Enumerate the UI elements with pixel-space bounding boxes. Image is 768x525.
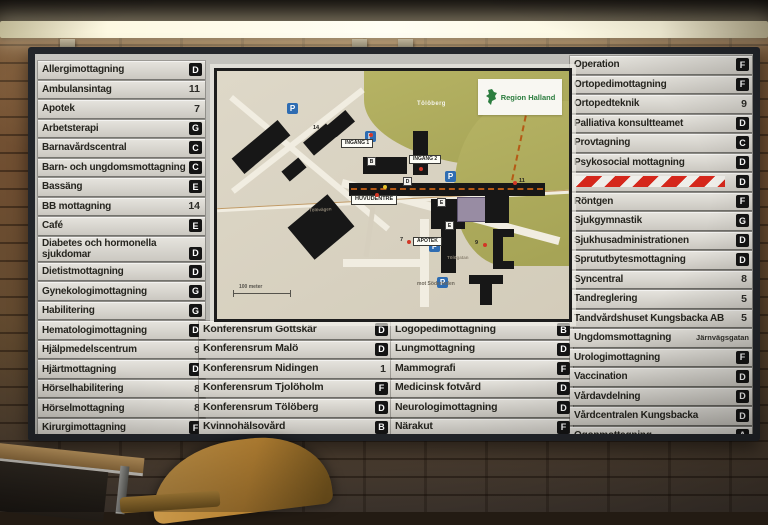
- location-badge: D: [736, 156, 749, 169]
- service-name: Mammografi: [395, 363, 554, 375]
- directory-row: Syncentral8: [570, 271, 752, 289]
- directory-row: CaféE: [38, 217, 205, 235]
- map-building: [480, 275, 492, 305]
- service-name: Syncentral: [574, 274, 738, 285]
- directory-row: BarnavårdscentralC: [38, 139, 205, 157]
- directory-row: SjukgymnastikG: [570, 212, 752, 230]
- directory-column-conference: Konferensrum GottskärDKonferensrum MalöD…: [198, 320, 392, 434]
- building-letter: D: [403, 177, 412, 186]
- directory-column-left: AllergimottagningDAmbulansintag11Apotek7…: [37, 60, 206, 434]
- service-name: Psykosocial mottagning: [574, 157, 733, 168]
- directory-row: OperationF: [570, 56, 752, 74]
- service-name: Barnavårdscentral: [42, 142, 186, 153]
- location-badge: C: [189, 141, 202, 154]
- service-name: Närakut: [395, 421, 554, 433]
- service-name: Vårdcentralen Kungsbacka: [574, 410, 733, 421]
- location-badge: 8: [741, 273, 747, 285]
- map-building-highlighted: [457, 197, 486, 222]
- directory-row: Konferensrum TölöbergD: [199, 399, 391, 417]
- directory-row: NeurologimottagningD: [391, 399, 573, 417]
- service-name: Konferensrum Gottskär: [203, 324, 372, 336]
- location-badge: D: [189, 63, 202, 76]
- service-name: Hjälpmedelscentrum: [42, 344, 191, 355]
- region-halland-logo: Region Halland: [478, 79, 562, 115]
- directory-row: SprututbytesmottagningD: [570, 251, 752, 269]
- directory-row: Ambulansintag11: [38, 81, 205, 99]
- directory-row: KvinnohälsovårdB: [199, 419, 391, 435]
- street-label: Tölögatan: [447, 255, 469, 260]
- map-building: [441, 229, 456, 273]
- service-name: Provtagning: [574, 137, 733, 148]
- service-name: Habilitering: [42, 305, 186, 316]
- directory-row: VårdavdelningD: [570, 388, 752, 406]
- service-name: Palliativa konsultteamet: [574, 118, 733, 129]
- location-badge: D: [736, 253, 749, 266]
- location-badge: D: [189, 247, 202, 260]
- location-badge: D: [375, 323, 388, 336]
- service-name: Gynekologimottagning: [42, 286, 186, 297]
- directory-row: Konferensrum Nidingen1: [199, 360, 391, 378]
- directory-row: D: [570, 173, 752, 191]
- directory-row: OrtopedimottagningF: [570, 76, 752, 94]
- logo-text: Region Halland: [501, 93, 556, 102]
- location-badge: E: [189, 180, 202, 193]
- bus-stop-marker: [383, 185, 387, 189]
- directory-row: ArbetsterapiG: [38, 120, 205, 138]
- service-name: Urologimottagning: [574, 352, 733, 363]
- halland-region-icon: [485, 89, 498, 105]
- directory-row: Psykosocial mottagningD: [570, 154, 752, 172]
- directory-row: Ortopedteknik9: [570, 95, 752, 113]
- directory-row: Konferensrum MalöD: [199, 341, 391, 359]
- directory-column-center: LogopedimottagningBLungmottagningDMammog…: [390, 320, 574, 434]
- location-badge: Järnvägsgatan: [696, 333, 749, 342]
- service-name: Ambulansintag: [42, 84, 186, 95]
- location-badge: D: [736, 234, 749, 247]
- directory-row: SjukhusadministrationenD: [570, 232, 752, 250]
- directory-row: UngdomsmottagningJärnvägsgatan: [570, 329, 752, 347]
- directory-row: Barn- och ungdomsmottagningC: [38, 159, 205, 177]
- directory-row: Vårdcentralen KungsbackaD: [570, 407, 752, 425]
- service-name: Lungmottagning: [395, 343, 554, 355]
- location-badge: 1: [380, 363, 386, 375]
- service-name: Kirurgimottagning: [42, 422, 186, 433]
- service-name: Allergimottagning: [42, 64, 186, 75]
- park-label: Tölöberg: [417, 101, 446, 107]
- location-badge: F: [736, 58, 749, 71]
- building-letter: B: [367, 157, 376, 166]
- location-badge: D: [736, 370, 749, 383]
- directory-row: Apotek7: [38, 100, 205, 118]
- directory-row: AllergimottagningD: [38, 61, 205, 79]
- directory-row: HjärtmottagningD: [38, 360, 205, 378]
- marker-number-9: 9: [475, 240, 478, 246]
- location-badge: D: [375, 401, 388, 414]
- service-name: Ortopedteknik: [574, 98, 738, 109]
- location-badge: D: [736, 390, 749, 403]
- service-name: Röntgen: [574, 196, 733, 207]
- directory-row: Medicinsk fotvårdD: [391, 380, 573, 398]
- location-badge: D: [375, 343, 388, 356]
- service-name: Hörselhabilitering: [42, 383, 191, 394]
- service-name: Sjukhusadministrationen: [574, 235, 733, 246]
- service-name: Medicinsk fotvård: [395, 382, 554, 394]
- pharmacy-marker: [407, 240, 411, 244]
- location-badge: F: [736, 195, 749, 208]
- map-building: [485, 189, 509, 223]
- location-badge: C: [736, 136, 749, 149]
- service-name: Ortopedimottagning: [574, 79, 733, 90]
- directory-row: Konferensrum GottskärD: [199, 321, 391, 339]
- directory-row: GynekologimottagningG: [38, 282, 205, 300]
- directory-row: Hörselhabilitering8: [38, 380, 205, 398]
- service-name: Diabetes och hormonella sjukdomar: [42, 238, 186, 260]
- directory-row: RöntgenF: [570, 193, 752, 211]
- marker-dot: [513, 181, 517, 185]
- marker-number-11: 11: [519, 178, 525, 184]
- location-badge: B: [375, 421, 388, 434]
- directory-row: HabiliteringG: [38, 302, 205, 320]
- entrance-marker: [369, 133, 373, 137]
- directory-row: KirurgimottagningF: [38, 419, 205, 434]
- location-badge: F: [375, 382, 388, 395]
- directory-row: LogopedimottagningB: [391, 321, 573, 339]
- service-name: Konferensrum Malö: [203, 343, 372, 355]
- directory-row: Tandvårdshuset Kungsbacka AB5: [570, 310, 752, 328]
- route-dashed-line: [351, 188, 543, 190]
- entrance-marker: [375, 193, 379, 197]
- fluorescent-light: [0, 21, 768, 38]
- location-badge: G: [189, 304, 202, 317]
- directory-column-right: OperationFOrtopedimottagningFOrtopedtekn…: [569, 55, 753, 434]
- building-letter: E: [437, 198, 446, 207]
- marker-number-14: 14: [313, 125, 319, 131]
- location-badge: E: [189, 219, 202, 232]
- location-badge: 14: [188, 200, 200, 212]
- directory-row: Konferensrum TjolöholmF: [199, 380, 391, 398]
- directory-row: BassängE: [38, 178, 205, 196]
- site-map: Tölöberg: [217, 71, 569, 319]
- service-name: Tandreglering: [574, 293, 738, 304]
- service-name: Konferensrum Nidingen: [203, 363, 377, 375]
- service-name: Hörselmottagning: [42, 403, 191, 414]
- map-scale-bar: [233, 293, 291, 294]
- service-name: Arbetsterapi: [42, 123, 186, 134]
- directory-row: Palliativa konsultteametD: [570, 115, 752, 133]
- location-badge: 11: [189, 83, 200, 95]
- service-name: Dietistmottagning: [42, 266, 186, 277]
- directory-row: Hjälpmedelscentrum9: [38, 341, 205, 359]
- directory-row: ProvtagningC: [570, 134, 752, 152]
- service-name: Logopedimottagning: [395, 324, 554, 336]
- map-scale-label: 100 meter: [239, 284, 262, 290]
- pharmacy-label: APOTEK: [413, 237, 442, 246]
- directory-board: AllergimottagningDAmbulansintag11Apotek7…: [28, 47, 760, 441]
- location-badge: A: [736, 429, 749, 434]
- directory-row: Hörselmottagning8: [38, 399, 205, 417]
- service-name: Hematologimottagning: [42, 325, 186, 336]
- directory-row: Diabetes och hormonella sjukdomarD: [38, 237, 205, 261]
- location-badge: D: [736, 175, 749, 188]
- location-badge: 7: [194, 103, 200, 115]
- location-badge: C: [189, 161, 202, 174]
- directory-row: DietistmottagningD: [38, 263, 205, 281]
- location-badge: D: [736, 117, 749, 130]
- service-name: Bassäng: [42, 181, 186, 192]
- service-name: BB mottagning: [42, 201, 185, 212]
- location-badge: G: [189, 285, 202, 298]
- location-badge: G: [736, 214, 749, 227]
- service-name: Ungdomsmottagning: [574, 332, 693, 343]
- directory-row: BB mottagning14: [38, 198, 205, 216]
- location-badge: 9: [741, 98, 747, 110]
- service-name: Sprututbytesmottagning: [574, 254, 733, 265]
- directory-row: UrologimottagningF: [570, 349, 752, 367]
- marker-dot: [483, 243, 487, 247]
- service-name: Vårdavdelning: [574, 391, 733, 402]
- service-name: Kvinnohälsovård: [203, 421, 372, 433]
- directory-row: HematologimottagningD: [38, 321, 205, 339]
- service-name: Ögonmottagning: [574, 430, 733, 434]
- service-name: Café: [42, 220, 186, 231]
- board-surface: AllergimottagningDAmbulansintag11Apotek7…: [35, 54, 753, 434]
- marker-number-7: 7: [400, 237, 403, 243]
- building-letter: E: [445, 221, 454, 230]
- location-badge: 5: [741, 293, 747, 305]
- service-name: Operation: [574, 59, 733, 70]
- directory-row: MammografiF: [391, 360, 573, 378]
- service-name: Barn- och ungdomsmottagning: [42, 162, 186, 173]
- service-name: Tandvårdshuset Kungsbacka AB: [574, 313, 738, 324]
- service-name: Vaccination: [574, 371, 733, 382]
- entrance-marker: [419, 167, 423, 171]
- hazard-stripes: [574, 176, 725, 187]
- direction-label: mot Söderleden: [417, 281, 459, 288]
- parking-icon: P: [445, 171, 456, 182]
- directory-row: LungmottagningD: [391, 341, 573, 359]
- location-badge: D: [736, 409, 749, 422]
- map-building: [493, 261, 514, 269]
- service-name: Sjukgymnastik: [574, 215, 733, 226]
- parking-icon: P: [287, 103, 298, 114]
- site-map-panel: Tölöberg: [214, 68, 572, 322]
- location-badge: G: [189, 122, 202, 135]
- location-badge: F: [736, 351, 749, 364]
- location-badge: D: [189, 265, 202, 278]
- directory-row: VaccinationD: [570, 368, 752, 386]
- location-badge: F: [736, 78, 749, 91]
- service-name: Apotek: [42, 103, 191, 114]
- directory-row: ÖgonmottagningA: [570, 427, 752, 435]
- directory-row: Tandreglering5: [570, 290, 752, 308]
- entrance-1-label: INGÅNG 1: [341, 139, 373, 148]
- service-name: Hjärtmottagning: [42, 364, 186, 375]
- location-badge: 5: [741, 312, 747, 324]
- service-name: Konferensrum Tjolöholm: [203, 382, 372, 394]
- entrance-2-label: INGÅNG 2: [409, 155, 441, 164]
- main-entrance-label: HUVUDENTRÉ: [351, 195, 397, 205]
- service-name: Konferensrum Tölöberg: [203, 402, 372, 414]
- road: [343, 259, 423, 267]
- map-building: [493, 229, 514, 237]
- service-name: Neurologimottagning: [395, 402, 554, 414]
- directory-row: NärakutF: [391, 419, 573, 435]
